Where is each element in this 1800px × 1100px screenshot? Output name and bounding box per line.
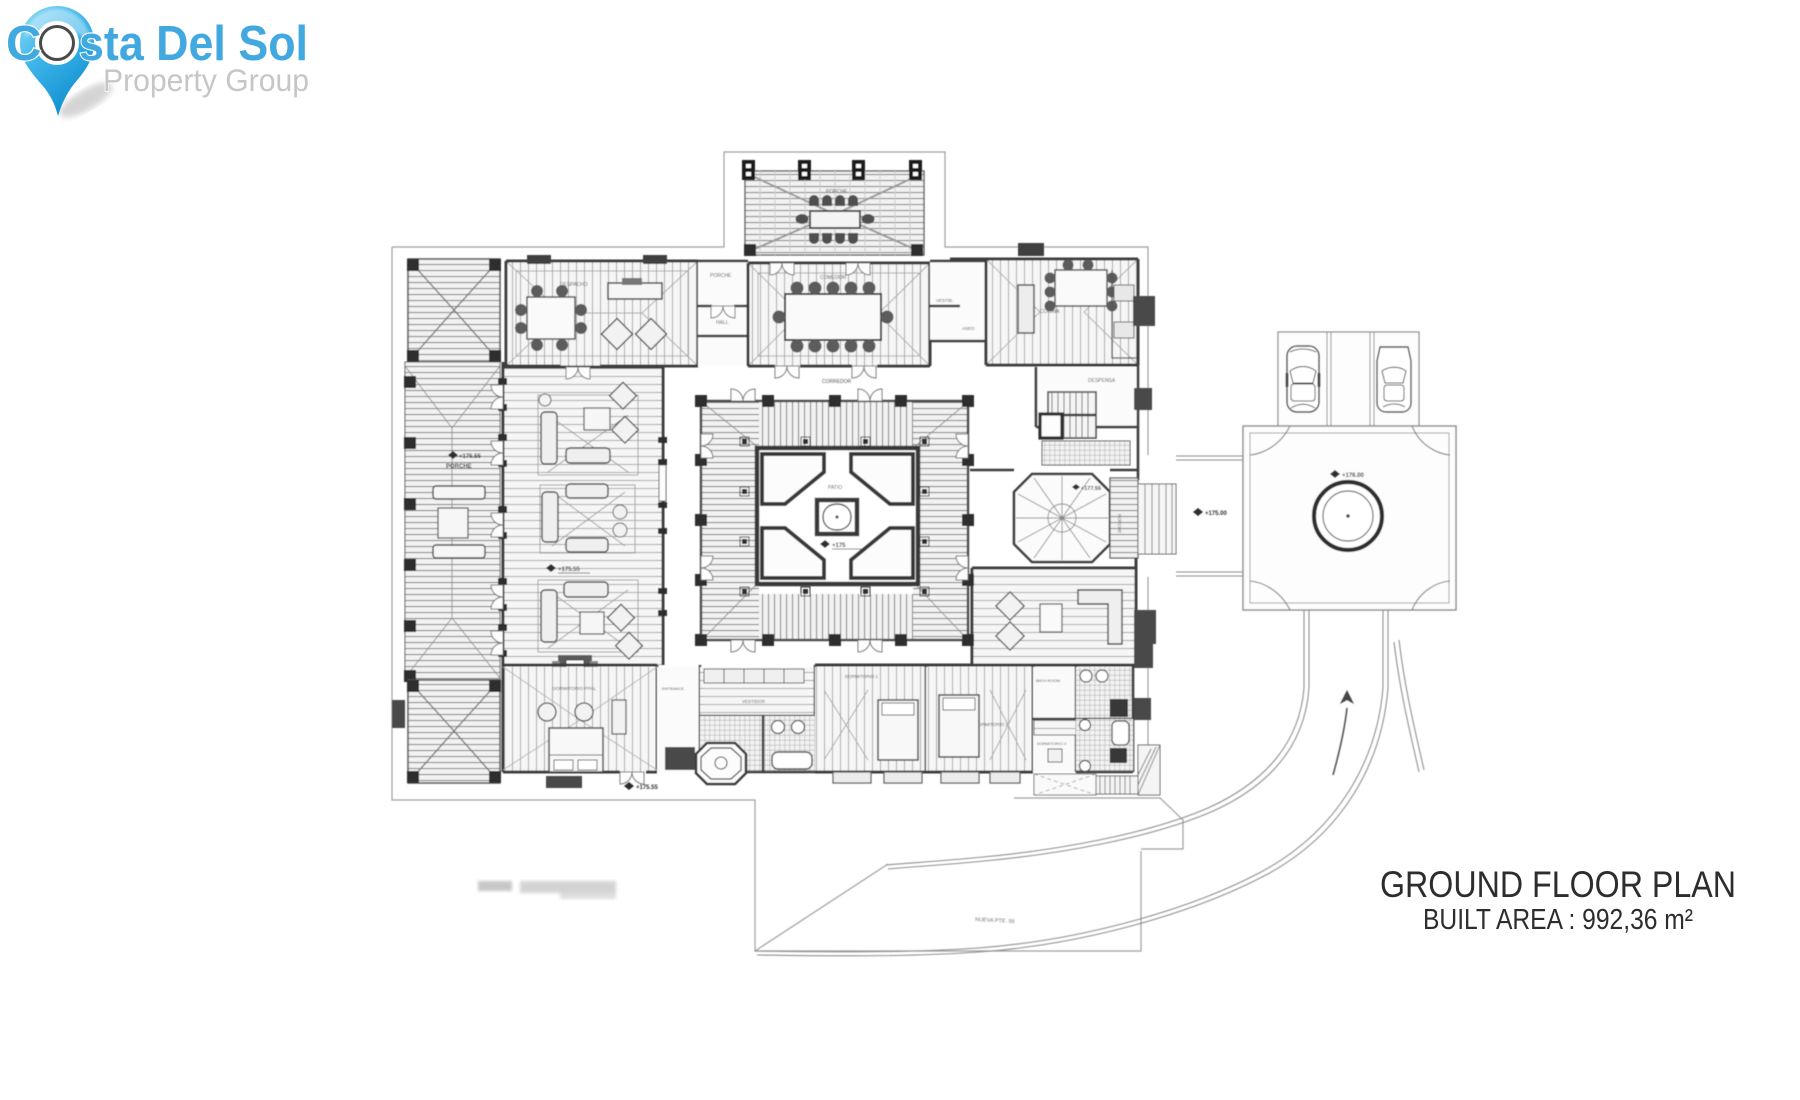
svg-text:VESTIDOR: VESTIDOR	[742, 699, 766, 704]
svg-text:+177.55: +177.55	[1081, 486, 1101, 492]
svg-text:DORMITORIO 1: DORMITORIO 1	[845, 674, 878, 679]
svg-text:PORCHE: PORCHE	[710, 273, 732, 279]
svg-text:BUILT AREA : 992,36 m²: BUILT AREA : 992,36 m²	[1423, 904, 1693, 936]
svg-text:CORREDOR: CORREDOR	[822, 379, 852, 385]
svg-text:GROUND FLOOR PLAN: GROUND FLOOR PLAN	[1380, 864, 1736, 905]
svg-text:HALL: HALL	[716, 320, 729, 326]
svg-text:BATH ROOM: BATH ROOM	[1036, 678, 1060, 683]
svg-text:PORCHE: PORCHE	[1117, 514, 1122, 533]
svg-text:ENTRANCE: ENTRANCE	[662, 686, 684, 691]
svg-text:DESPENSA: DESPENSA	[1088, 378, 1116, 384]
svg-text:+175.00: +175.00	[1205, 511, 1228, 517]
svg-text:+176.00: +176.00	[1342, 473, 1365, 479]
svg-text:VESTIB.: VESTIB.	[936, 298, 953, 303]
svg-text:PATIO: PATIO	[828, 485, 842, 491]
svg-text:DORMITORIO 3: DORMITORIO 3	[1037, 741, 1067, 746]
svg-text:PORCHE: PORCHE	[446, 464, 472, 470]
svg-text:+175.55: +175.55	[459, 454, 482, 460]
svg-text:C: C	[6, 17, 41, 71]
svg-text:+175.55: +175.55	[636, 785, 659, 791]
svg-text:Property Group: Property Group	[103, 62, 309, 98]
svg-text:DORMITORIO 2: DORMITORIO 2	[975, 722, 1008, 727]
svg-text:+175: +175	[832, 543, 846, 549]
svg-text:DORMITORIO PPAL: DORMITORIO PPAL	[552, 686, 597, 692]
svg-text:ASEO: ASEO	[962, 326, 975, 331]
svg-text:PORCHE: PORCHE	[826, 189, 848, 195]
svg-text:+175.55: +175.55	[558, 567, 581, 573]
svg-text:COMEDOR: COMEDOR	[820, 275, 847, 281]
